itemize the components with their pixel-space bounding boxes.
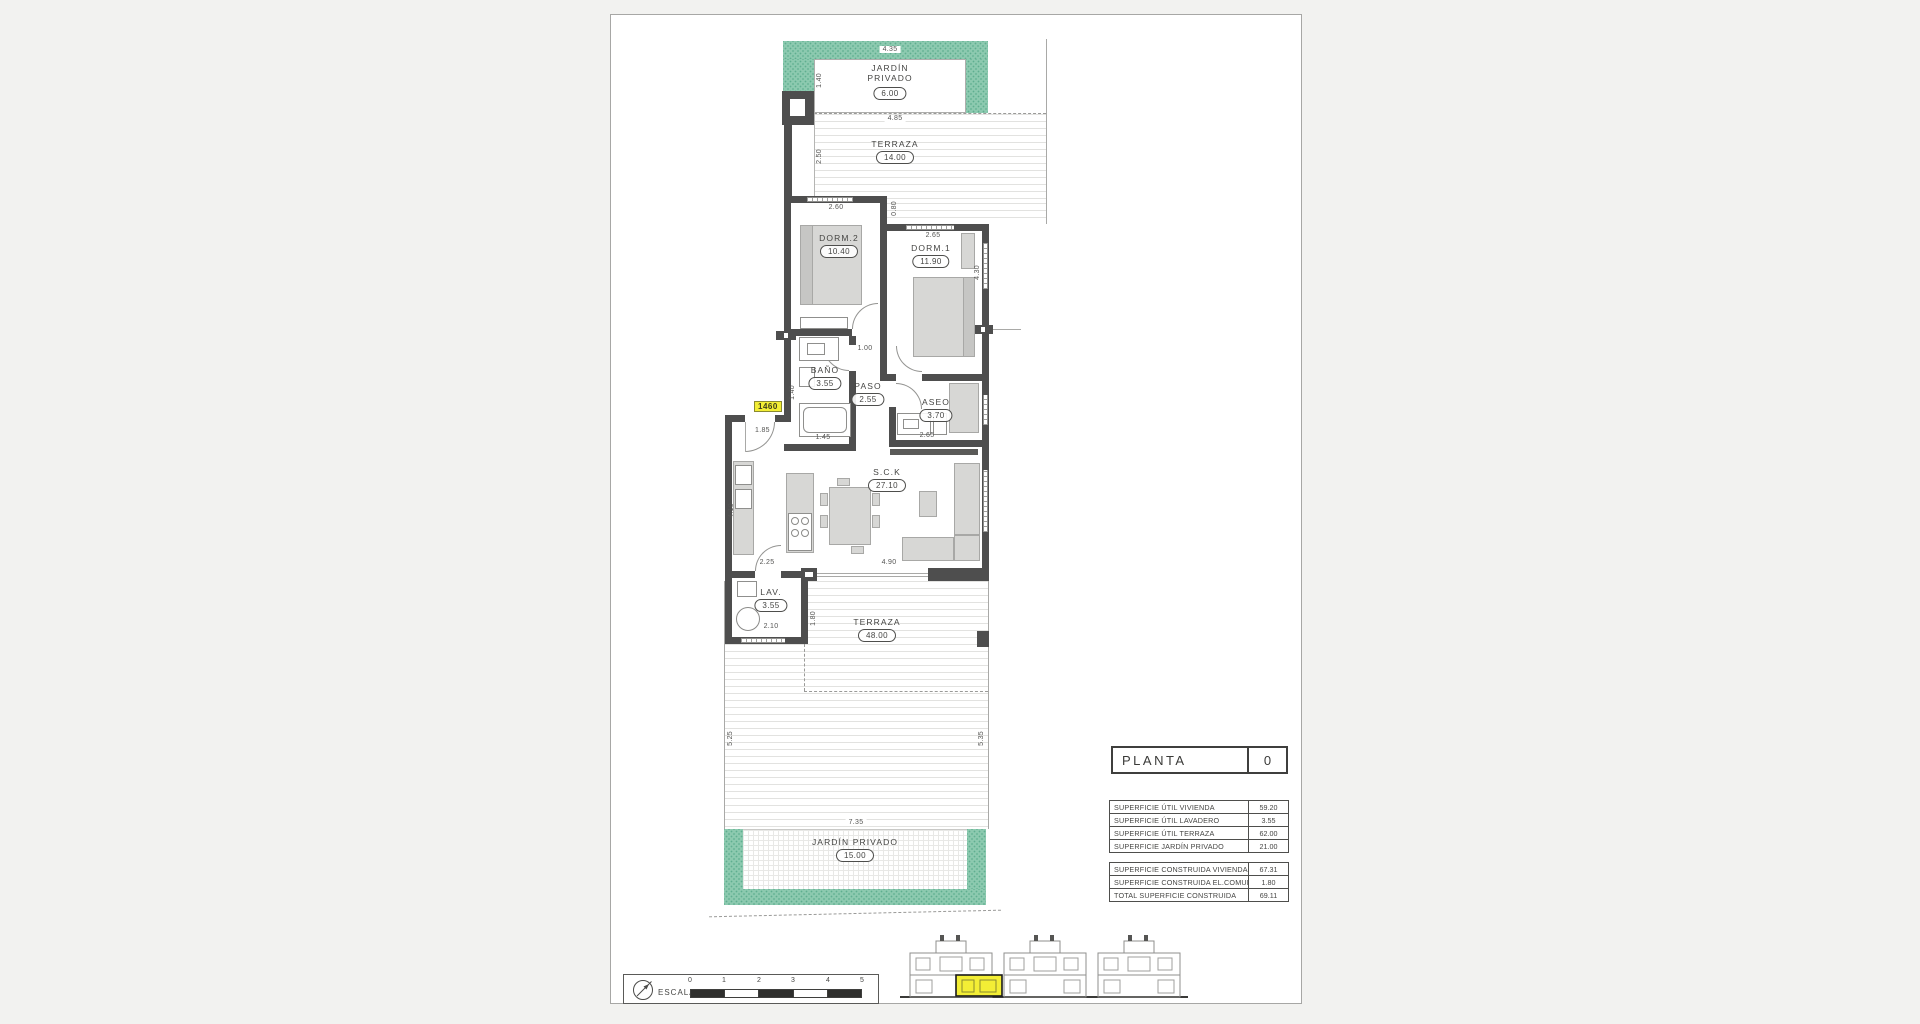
wall-segment [775,415,791,422]
room-label-sck: S.C.K [873,467,901,477]
burner-icon [791,517,799,525]
row-label: TOTAL SUPERFICIE CONSTRUIDA [1110,889,1248,901]
door-arc [852,303,878,329]
wall-segment [849,336,856,345]
wall-segment [784,444,856,451]
slider-glass-line [817,573,928,574]
scale-segment [759,990,793,997]
highlighted-unit [956,975,1002,996]
wall-segment [889,374,896,381]
scale-tick: 1 [722,977,726,984]
wall-segment [889,440,989,447]
kitchen-appliance [735,489,752,509]
table-row: SUPERFICIE CONSTRUIDA EL.COMUNES 1.80 [1109,875,1289,889]
area-badge-garden-top: 6.00 [873,87,906,100]
slider-glass-line [817,576,928,577]
dim-bano-width: 1.45 [816,434,831,441]
dim-garden-top-depth: 1.40 [816,73,823,88]
table-row: SUPERFICIE ÚTIL TERRAZA 62.00 [1109,826,1289,840]
top-terrace-deck [814,113,1046,203]
green-hatch-left-band [783,59,814,91]
dim-entry-width: 1.85 [755,427,770,434]
useful-area-table: SUPERFICIE ÚTIL VIVIENDA 59.20 SUPERFICI… [1109,801,1289,853]
chair [837,478,850,486]
row-label: SUPERFICIE ÚTIL LAVADERO [1110,814,1248,826]
window-opening [983,470,988,532]
scale-segment [691,990,725,997]
pillar [977,631,989,647]
scale-bar-box: ESCALA : 0 1 2 3 4 5 [623,974,879,1004]
dim-terraza-top-depth: 2.50 [816,149,823,164]
scale-segment [828,990,861,997]
coffee-table [919,491,937,517]
dim-terraza-right: 5.35 [978,731,985,746]
scale-tick: 5 [860,977,864,984]
area-badge-garden-bottom: 15.00 [836,849,874,862]
dim-kitchen-width: 2.25 [760,559,775,566]
laundry-shelf [737,581,757,597]
door-arc [896,383,922,409]
window-opening [741,638,785,643]
wall-segment [801,571,808,644]
table-row: SUPERFICIE ÚTIL LAVADERO 3.55 [1109,813,1289,827]
bench-furniture [800,317,848,329]
dim-garden-bottom-width: 7.35 [846,819,867,826]
section-line [993,329,1021,330]
shaft-core [790,99,805,116]
drawing-sheet: 4.35 1.40 JARDÍN PRIVADO 6.00 4.85 2.50 … [610,14,1302,1004]
dim-dorm2-width: 2.60 [829,204,844,211]
sofa [954,463,980,535]
row-value: 67.31 [1248,863,1288,875]
room-label-lav: LAV. [760,587,781,597]
dim-garden-top-width: 4.35 [880,46,901,53]
burner-icon [801,517,809,525]
area-badge-sck: 27.10 [868,479,906,492]
burner-icon [801,529,809,537]
window-opening [983,395,988,425]
sink-basin [807,343,825,355]
table-row: SUPERFICIE CONSTRUIDA VIVIENDA 67.31 [1109,862,1289,876]
dim-paso-width: 1.00 [858,345,873,352]
scale-segment [725,990,759,997]
area-badge-terraza-top: 14.00 [876,151,914,164]
wall-segment [725,571,755,578]
area-badge-dorm1: 11.90 [912,255,949,268]
planta-label: PLANTA [1113,748,1249,772]
kitchen-appliance [735,465,752,485]
covered-area-dash-v [804,644,805,691]
area-badge-dorm2: 10.40 [820,245,858,258]
section-mark-core [981,327,985,332]
dim-terraza-top-width: 4.85 [885,115,906,122]
planta-title-table: PLANTA 0 [1111,746,1288,774]
wall-segment [784,125,792,196]
green-hatch-bottom-band [724,889,986,905]
room-label-terraza-top: TERRAZA [871,139,918,149]
row-label: SUPERFICIE ÚTIL VIVIENDA [1110,801,1248,813]
shower-fixture [949,383,979,433]
green-hatch-right-band [966,59,988,113]
table-row: TOTAL SUPERFICIE CONSTRUIDA 69.11 [1109,888,1289,902]
scale-tick: 0 [688,977,692,984]
built-area-table: SUPERFICIE CONSTRUIDA VIVIENDA 67.31 SUP… [1109,863,1289,902]
row-value: 1.80 [1248,876,1288,888]
wall-segment [725,415,745,422]
chair [872,515,880,528]
area-badge-lav: 3.55 [754,599,787,612]
window-opening [983,243,988,289]
dim-aseo-width: 2.65 [920,432,935,439]
unit-number-tag: 1460 [754,401,782,412]
row-value: 59.20 [1248,801,1288,813]
plot-boundary-dash [709,910,1001,918]
door-arc [755,545,781,571]
area-badge-aseo: 3.70 [919,409,952,422]
chair [820,493,828,506]
room-label-garden-bottom: JARDÍN PRIVADO [812,837,898,847]
row-value: 3.55 [1248,814,1288,826]
table-row: SUPERFICIE ÚTIL VIVIENDA 59.20 [1109,800,1289,814]
area-badge-terraza-main: 48.00 [858,629,896,642]
wardrobe-furniture [961,233,975,269]
dim-terraza-left: 5.25 [727,731,734,746]
scale-segment [794,990,828,997]
row-label: SUPERFICIE JARDÍN PRIVADO [1110,840,1248,852]
dim-kitchen-depth: 4.10 [728,503,735,518]
scale-tick: 4 [826,977,830,984]
room-label-dorm1: DORM.1 [911,243,951,253]
table-row: SUPERFICIE JARDÍN PRIVADO 21.00 [1109,839,1289,853]
room-label-dorm2: DORM.2 [819,233,859,243]
window-opening [807,197,853,202]
door-leaf [745,422,746,452]
bed-pillow [800,225,813,305]
chair [820,515,828,528]
dim-lav-width: 2.10 [764,623,779,630]
row-label: SUPERFICIE ÚTIL TERRAZA [1110,827,1248,839]
row-value: 62.00 [1248,827,1288,839]
dining-table [829,487,871,545]
dim-sck-width: 4.90 [882,559,897,566]
bed-pillow [963,277,975,357]
section-mark-core [784,333,788,338]
scale-tick: 2 [757,977,761,984]
room-label-aseo: ASEO [922,397,950,407]
planta-value: 0 [1249,748,1286,772]
covered-area-dash-h [804,691,988,692]
chair [851,546,864,554]
chair [872,493,880,506]
neighbor-boundary-line [1046,39,1047,224]
area-badge-bano: 3.55 [808,377,841,390]
wall-segment [725,422,732,644]
dim-bano-side: 1.40 [789,385,796,400]
room-label-bano: BAÑO [811,365,840,375]
screenshot-root: { "rooms": { "garden_top": {"name_line1"… [0,0,1920,1024]
dim-lav-side: 1.80 [810,611,817,626]
dim-wall-step: 0.80 [891,201,898,216]
wall-segment [880,196,887,374]
sofa-corner [954,535,980,561]
area-badge-paso: 2.55 [851,393,884,406]
terrace-right-line [988,581,989,829]
top-terrace-deck-ext [887,203,1046,224]
row-value: 21.00 [1248,840,1288,852]
window-opening [906,225,954,230]
wall-segment [928,568,989,581]
sofa [902,537,954,561]
scale-tick: 3 [791,977,795,984]
north-arrow-icon [632,979,654,1001]
room-label-terraza-main: TERRAZA [853,617,900,627]
dim-dorm1-depth: 4.30 [974,265,981,280]
tv-unit [890,449,978,455]
burner-icon [791,529,799,537]
row-value: 69.11 [1248,889,1288,901]
room-label-garden-top-2: PRIVADO [867,73,912,83]
row-label: SUPERFICIE CONSTRUIDA VIVIENDA [1110,863,1248,875]
row-label: SUPERFICIE CONSTRUIDA EL.COMUNES [1110,876,1248,888]
pillar-core [805,572,813,577]
bathtub-inner [803,407,847,433]
sink-basin [903,419,919,429]
room-label-paso: PASO [854,381,881,391]
site-elevation-drawing [894,931,1194,1011]
wall-segment [922,374,989,381]
room-label-garden-top-1: JARDÍN [871,63,908,73]
scale-bar [690,989,862,998]
dim-dorm1-width: 2.65 [926,232,941,239]
